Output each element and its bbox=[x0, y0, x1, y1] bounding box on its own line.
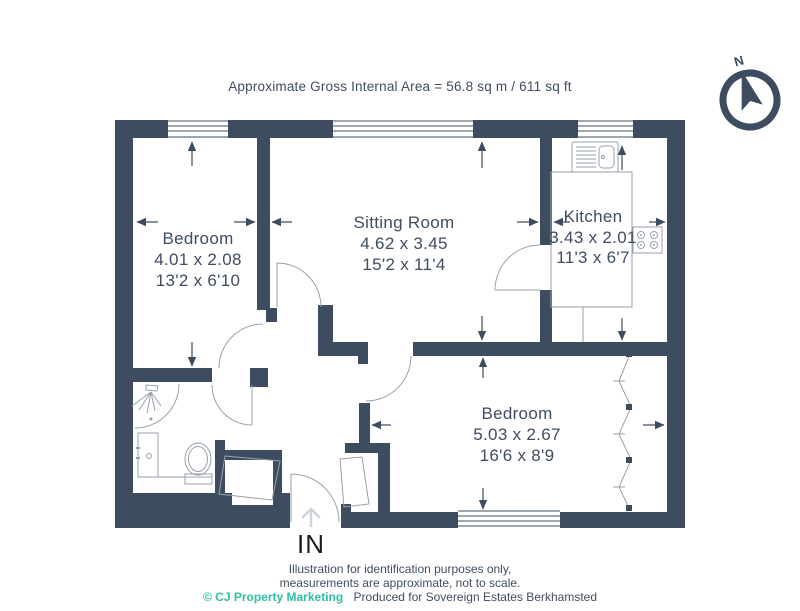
room-dims-metric: 4.62 x 3.45 bbox=[360, 234, 447, 253]
kitchen-sink-icon bbox=[572, 142, 618, 172]
footer-produced-by: Produced for Sovereign Estates Berkhamst… bbox=[354, 590, 597, 604]
entrance-label: IN bbox=[297, 529, 325, 559]
shower-icon bbox=[132, 384, 179, 428]
room-dims-imperial: 16'6 x 8'9 bbox=[480, 446, 555, 465]
hob-icon bbox=[633, 227, 662, 253]
footer-line-2: measurements are approximate, not to sca… bbox=[280, 576, 521, 590]
room-dims-metric: 3.43 x 2.01 bbox=[549, 228, 636, 247]
kitchen-door-icon bbox=[495, 245, 540, 290]
footer-line-1: Illustration for identification purposes… bbox=[289, 562, 512, 576]
bathroom-door-icon bbox=[212, 385, 252, 425]
room-dims-imperial: 15'2 x 11'4 bbox=[362, 255, 445, 274]
room-dims-metric: 5.03 x 2.67 bbox=[473, 425, 560, 444]
compass-north-label: N bbox=[732, 53, 745, 70]
room-label-bedroom-2: Bedroom bbox=[481, 404, 552, 423]
wall-openings bbox=[168, 118, 633, 529]
bath-vanity-icon bbox=[136, 433, 212, 477]
gross-internal-area-title: Approximate Gross Internal Area = 56.8 s… bbox=[228, 79, 572, 94]
bedroom1-door-icon bbox=[219, 324, 263, 368]
room-dims-imperial: 13'2 x 6'10 bbox=[156, 271, 240, 290]
toilet-icon bbox=[185, 443, 212, 484]
footer: Illustration for identification purposes… bbox=[203, 562, 597, 604]
bathroom-fixtures bbox=[132, 384, 212, 484]
room-labels: Bedroom 4.01 x 2.08 13'2 x 6'10 Sitting … bbox=[154, 207, 636, 465]
wardrobe-icon bbox=[613, 351, 632, 511]
room-label-kitchen: Kitchen bbox=[564, 207, 623, 226]
floor-plan: Approximate Gross Internal Area = 56.8 s… bbox=[0, 0, 800, 611]
footer-copyright: © CJ Property Marketing bbox=[203, 590, 343, 604]
compass-icon: N bbox=[711, 46, 784, 133]
floorplan-page: Approximate Gross Internal Area = 56.8 s… bbox=[0, 0, 800, 611]
room-dims-imperial: 11'3 x 6'7 bbox=[556, 248, 629, 267]
sitting-room-door-icon bbox=[277, 263, 321, 307]
footer-line-3: © CJ Property Marketing Produced for Sov… bbox=[203, 590, 597, 604]
room-label-sitting-room: Sitting Room bbox=[354, 213, 455, 232]
bedroom2-door-icon bbox=[366, 356, 411, 401]
room-label-bedroom-1: Bedroom bbox=[162, 229, 233, 248]
walls bbox=[115, 120, 685, 528]
room-dims-metric: 4.01 x 2.08 bbox=[154, 250, 241, 269]
cupboard-door-icon bbox=[340, 457, 369, 507]
